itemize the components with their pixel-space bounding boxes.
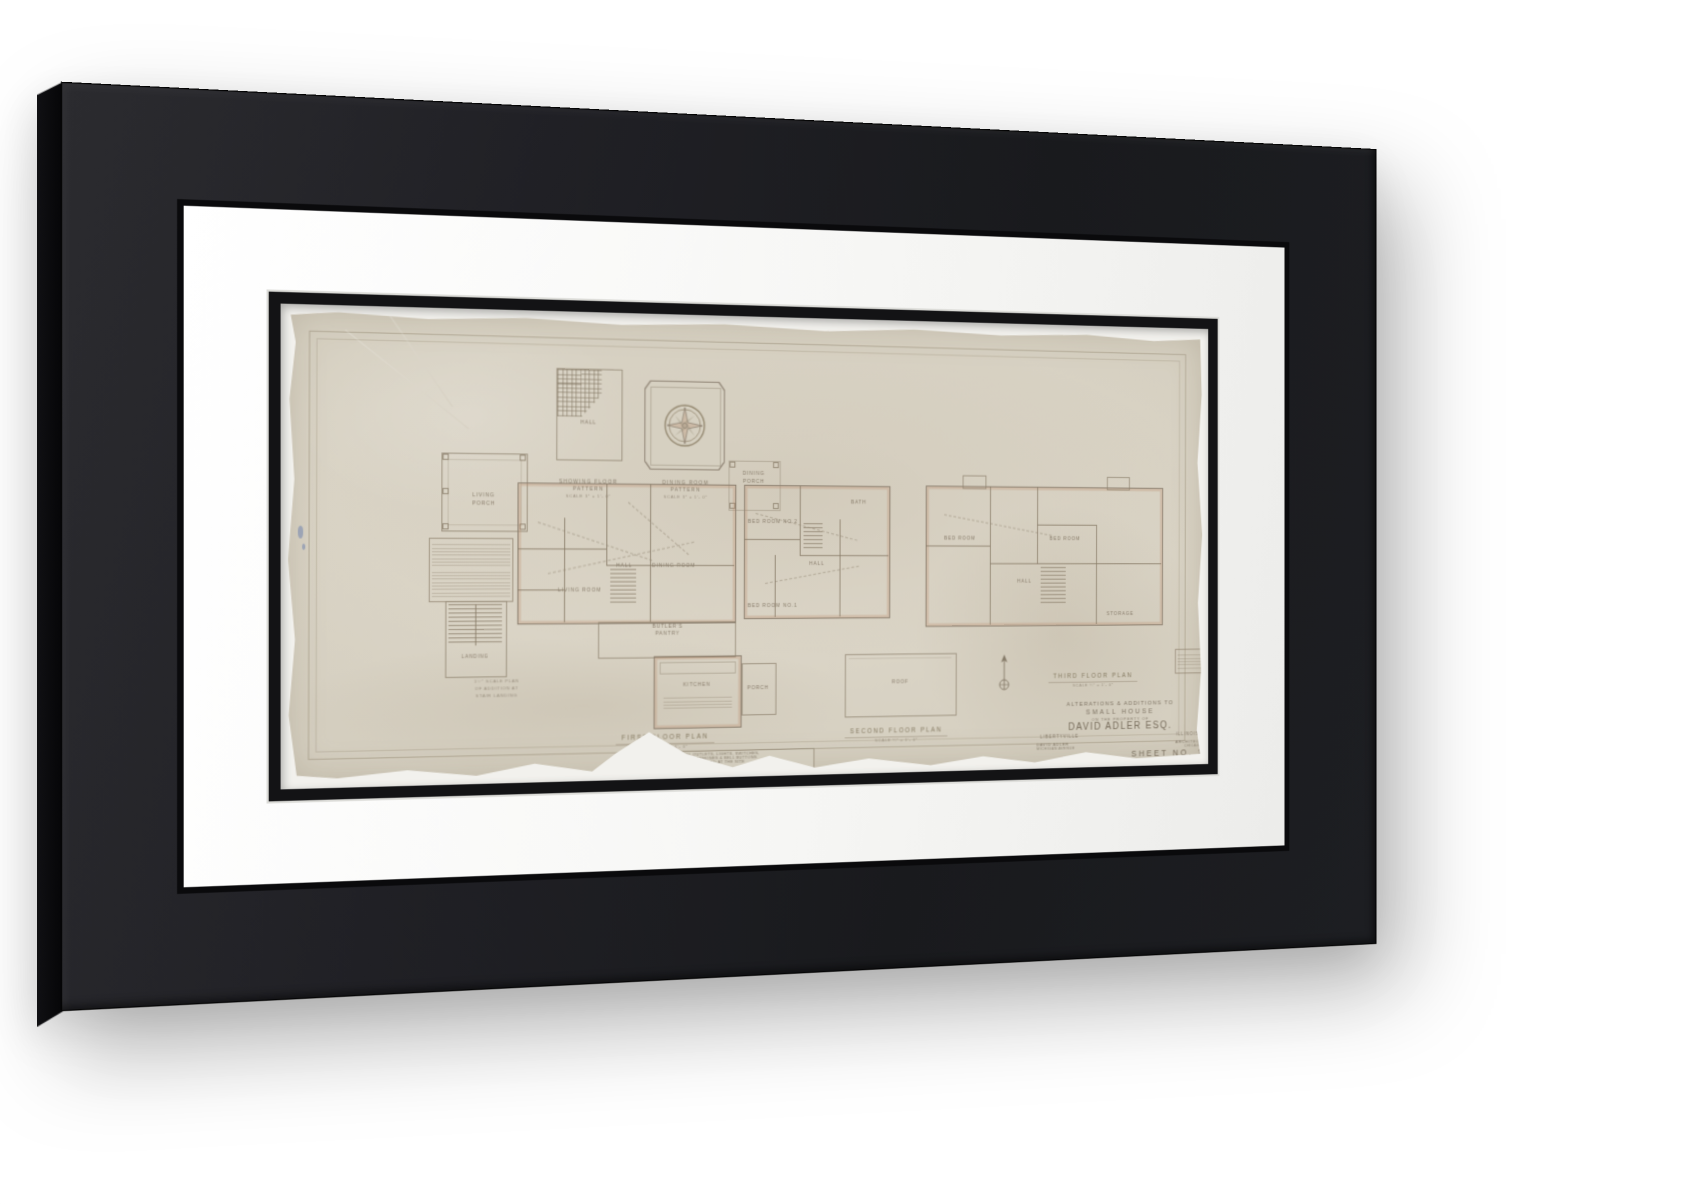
room-label-kitchen: KITCHEN <box>654 681 740 688</box>
specification-note-box <box>429 538 514 603</box>
ink-stain <box>302 544 305 550</box>
room-label-dining-room: DINING ROOM <box>652 563 696 569</box>
porch-column <box>443 454 449 460</box>
framed-print-photo: HALL SHOWING FLOOR PATTERN SCALE 3″ = 1′… <box>0 0 1704 1204</box>
title-block: ALTERATIONS & ADDITIONS TO SMALL HOUSE O… <box>1033 700 1206 761</box>
title-block-state: ILLINOIS <box>1176 731 1199 736</box>
room-label-hall-detail: HALL <box>556 419 620 426</box>
frame-shadow: HALL SHOWING FLOOR PATTERN SCALE 3″ = 1′… <box>90 118 1450 975</box>
room-label-living-porch: PORCH <box>441 500 525 507</box>
room-label-bed-room-2: BED ROOM NO.2 <box>748 519 798 525</box>
room-label-bed-room: BED ROOM <box>1050 536 1081 542</box>
stair-hatch <box>610 569 636 604</box>
porch-column <box>442 523 448 529</box>
stair-hatch <box>1041 567 1066 606</box>
dormer-outline <box>963 475 987 489</box>
room-label-hall: HALL <box>616 563 632 569</box>
frame-molding: HALL SHOWING FLOOR PATTERN SCALE 3″ = 1′… <box>61 82 1376 1012</box>
room-label-living-porch: LIVING <box>441 492 525 499</box>
kitchen-equipment-note <box>661 692 733 713</box>
porch-column <box>773 462 779 468</box>
room-label-living-room: LIVING ROOM <box>558 587 602 593</box>
room-label-bed-room: BED ROOM <box>944 536 976 542</box>
kitchen-counter <box>660 661 736 674</box>
inner-fillet: HALL SHOWING FLOOR PATTERN SCALE 3″ = 1′… <box>269 292 1218 802</box>
wall-line <box>606 483 607 565</box>
room-label-bath: BATH <box>851 500 867 506</box>
room-label-landing: LANDING <box>445 654 505 660</box>
drawing-sheet: HALL SHOWING FLOOR PATTERN SCALE 3″ = 1′… <box>286 309 1203 782</box>
title-block-architect-address: MICHIGAN AVENUE <box>1037 746 1075 751</box>
room-label-porch: PORCH <box>742 685 775 691</box>
title-block-sheet-no: SHEET NO. 1 <box>1131 747 1204 758</box>
dormer-outline <box>1107 477 1130 491</box>
room-label-storage: STORAGE <box>1107 611 1134 617</box>
wall-line <box>744 539 800 540</box>
picture-frame: HALL SHOWING FLOOR PATTERN SCALE 3″ = 1′… <box>61 82 1376 1012</box>
architect-note-line: BY THE ARCHITECT. <box>657 764 701 770</box>
glazing-area: HALL SHOWING FLOOR PATTERN SCALE 3″ = 1′… <box>281 304 1209 790</box>
mat-board: HALL SHOWING FLOOR PATTERN SCALE 3″ = 1′… <box>184 206 1285 888</box>
wall-line <box>517 548 606 549</box>
room-label-hall-3: HALL <box>1017 579 1032 585</box>
title-block-city: LIBERTYVILLE <box>1040 734 1078 740</box>
tank-note-box <box>1175 649 1208 674</box>
mat-bevel-cut: HALL SHOWING FLOOR PATTERN SCALE 3″ = 1′… <box>267 289 1220 803</box>
north-arrow-icon <box>995 654 1013 695</box>
room-label-bed-room-1: BED ROOM NO.1 <box>748 603 798 609</box>
frame-left-edge <box>37 82 63 1027</box>
room-label-butlers-pantry: PANTRY <box>646 631 689 637</box>
ink-stain <box>298 526 303 539</box>
second-floor-plan <box>744 485 891 619</box>
stair-rail-line <box>475 604 476 645</box>
porch-column <box>730 461 736 467</box>
compass-rose-icon <box>662 402 707 449</box>
wall-line <box>926 545 990 546</box>
room-label-butlers-pantry: BUTLER'S <box>646 624 689 630</box>
wall-line <box>800 555 889 556</box>
wall-line <box>800 485 801 555</box>
porch-column <box>520 455 526 461</box>
wall-line <box>990 563 1161 564</box>
room-label-dining-porch: DINING <box>729 471 779 478</box>
room-label-hall-2: HALL <box>809 561 824 567</box>
